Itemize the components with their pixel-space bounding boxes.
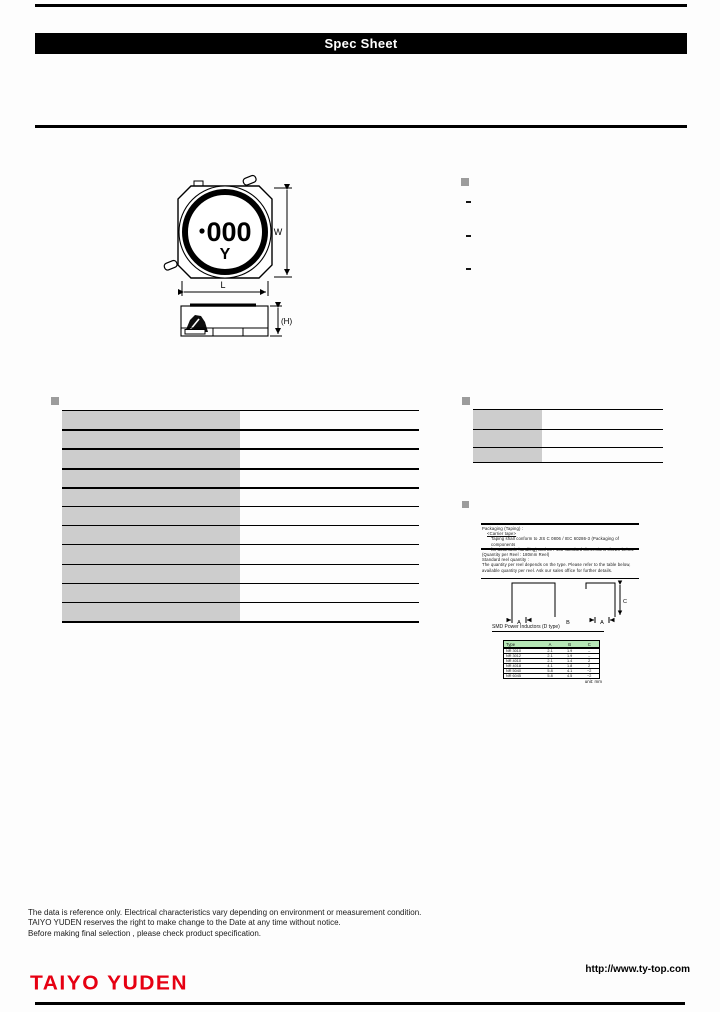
spec-table-row	[62, 564, 419, 583]
packaging-table-row: NR 60455.84.5~2	[504, 673, 599, 678]
packaging-quantity-line: The quantity per reel depends on the typ…	[482, 562, 640, 567]
disclaimer-line-3: Before making final selection , please c…	[28, 929, 648, 939]
taiyo-yuden-logo: TAIYO YUDEN	[30, 973, 188, 996]
component-drawing: 000 Y W L	[145, 167, 305, 352]
dim-l-label: L	[220, 280, 225, 290]
website-url: http://www.ty-top.com	[585, 964, 690, 975]
packaging-unit-note: unit: mm	[556, 679, 602, 684]
bottom-rule	[35, 1002, 685, 1005]
top-rule	[35, 4, 687, 7]
spec-table-row	[62, 506, 419, 525]
packaging-quantity-text: (Quantity per Reel : 180mm Reel) Standar…	[482, 552, 640, 574]
packaging-table-row: NR 40102.11.42	[504, 658, 599, 663]
spec-table-row	[62, 468, 419, 487]
disclaimer: The data is reference only. Electrical c…	[28, 908, 648, 939]
spec-table-row	[62, 525, 419, 544]
ratings-table-row	[473, 447, 663, 462]
spec-table-row	[62, 429, 419, 448]
packaging-table-row: NR 50405.84.1~2	[504, 668, 599, 673]
packaging-rule-top	[481, 523, 639, 525]
spec-section-marker	[51, 397, 59, 405]
spec-table-row	[62, 487, 419, 506]
ratings-table-row	[473, 409, 663, 429]
packaging-table-row: NR 40184.11.82	[504, 663, 599, 668]
packaging-quantity-line: available quantity per reel. Ask our sal…	[482, 568, 640, 573]
dim-h-label: (H)	[281, 317, 292, 326]
dim-w-label: W	[274, 227, 283, 237]
packaging-table-title: SMD Power Inductors (D type)	[492, 624, 604, 632]
component-top-view: 000 Y	[163, 175, 272, 278]
spec-sheet-banner: Spec Sheet	[35, 33, 687, 54]
spec-sheet-page: Spec Sheet 000 Y W	[0, 0, 720, 1012]
spec-table-row	[62, 602, 419, 621]
spec-table-row	[62, 544, 419, 563]
header-divider-rule	[35, 125, 687, 128]
ratings-table	[473, 409, 663, 463]
spec-table-row	[62, 583, 419, 602]
component-side-view	[181, 304, 268, 337]
packaging-table-row: NR 30122.11.9–	[504, 653, 599, 658]
header-a: A	[540, 642, 560, 647]
marking-letter: Y	[220, 246, 231, 263]
ratings-table-row	[473, 429, 663, 447]
features-section-marker	[461, 178, 469, 186]
packaging-intro-line: Taping shall conform to JIS C 0806 / IEC…	[482, 536, 640, 547]
feature-dash-1	[466, 201, 471, 203]
tape-dimension-diagram: A B A C	[498, 576, 633, 628]
spec-table	[62, 410, 419, 623]
packaging-rule-mid	[481, 548, 639, 550]
disclaimer-line-2: TAIYO YUDEN reserves the right to make c…	[28, 918, 648, 928]
header-type: Type	[504, 642, 540, 647]
disclaimer-line-1: The data is reference only. Electrical c…	[28, 908, 648, 918]
ratings-section-marker	[462, 397, 470, 405]
packaging-table-row: NR 30102.11.9–	[504, 648, 599, 653]
feature-dash-2	[466, 235, 471, 237]
spec-table-row	[62, 448, 419, 467]
header-b: B	[560, 642, 580, 647]
packaging-section-marker	[462, 501, 469, 508]
packaging-table-header: Type A B C	[504, 641, 599, 648]
marking-code: 000	[206, 217, 251, 247]
feature-dash-3	[466, 268, 471, 270]
marking-dot	[199, 228, 204, 233]
spec-table-row	[62, 410, 419, 429]
tape-dim-c-label: C	[623, 599, 627, 605]
header-c: C	[579, 642, 599, 647]
packaging-table: Type A B C NR 30102.11.9– NR 30122.11.9–…	[503, 640, 600, 679]
